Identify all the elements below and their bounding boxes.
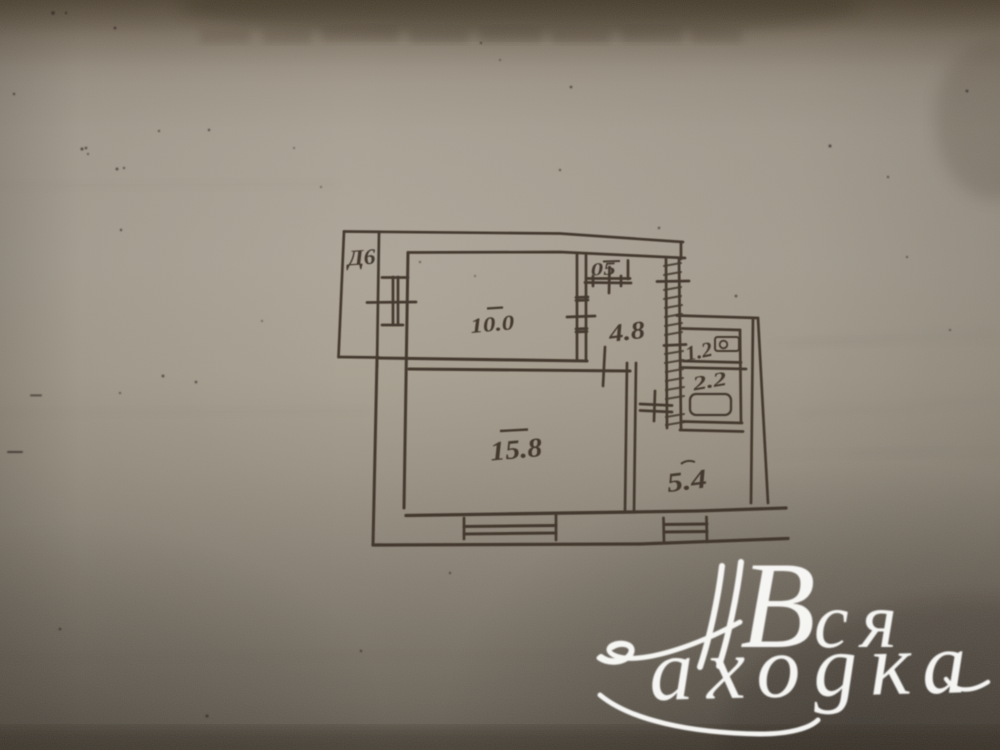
svg-text:Д6: Д6 <box>344 244 376 271</box>
svg-text:15.8: 15.8 <box>489 432 544 466</box>
svg-text:4.8: 4.8 <box>606 317 647 348</box>
svg-text:ахоgка: ахоgка <box>648 615 980 720</box>
svg-text:5.4: 5.4 <box>665 463 708 498</box>
svg-text:10.0: 10.0 <box>469 310 516 338</box>
